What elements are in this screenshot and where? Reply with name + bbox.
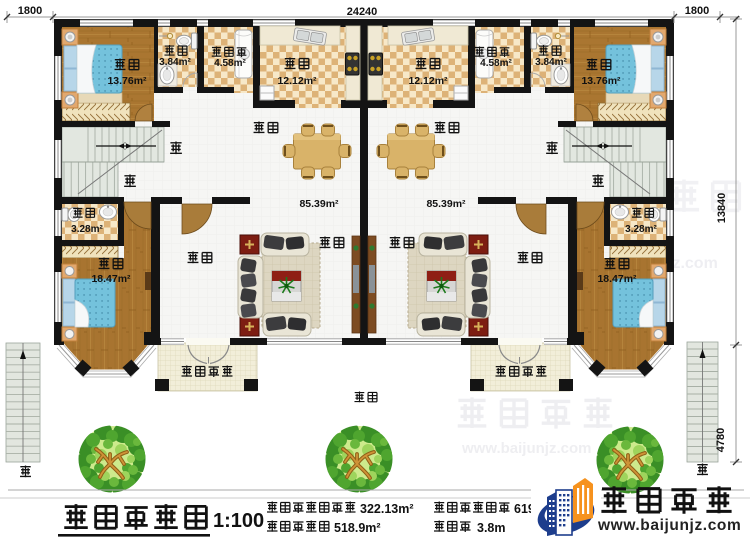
svg-text:18.47m²: 18.47m²: [91, 273, 131, 285]
svg-text:3.8m: 3.8m: [477, 521, 506, 535]
svg-text:85.39m²: 85.39m²: [426, 198, 466, 210]
svg-text:1:100: 1:100: [213, 510, 264, 532]
svg-text:1800: 1800: [18, 5, 42, 17]
svg-text:13.76m²: 13.76m²: [581, 75, 621, 87]
svg-text:518.9m²: 518.9m²: [334, 521, 381, 535]
svg-text:4.58m²: 4.58m²: [480, 58, 512, 69]
svg-text:jz.com: jz.com: [667, 255, 718, 272]
svg-text:85.39m²: 85.39m²: [299, 198, 339, 210]
svg-text:3.84m²: 3.84m²: [159, 57, 191, 68]
svg-text:1800: 1800: [685, 5, 709, 17]
svg-text:3.84m²: 3.84m²: [535, 57, 567, 68]
svg-text:13840: 13840: [716, 193, 728, 224]
svg-text:13.76m²: 13.76m²: [107, 75, 147, 87]
svg-text:www.baijunjz.com: www.baijunjz.com: [461, 440, 591, 457]
svg-text:4780: 4780: [715, 428, 727, 452]
svg-text:322.13m²: 322.13m²: [360, 502, 414, 516]
svg-text:3.28m²: 3.28m²: [625, 224, 657, 235]
svg-text:18.47m²: 18.47m²: [597, 273, 637, 285]
svg-text:3.28m²: 3.28m²: [71, 224, 103, 235]
svg-text:www.baijunjz.com: www.baijunjz.com: [597, 517, 741, 534]
svg-text:12.12m²: 12.12m²: [408, 75, 448, 87]
svg-text:12.12m²: 12.12m²: [277, 75, 317, 87]
svg-text:4.58m²: 4.58m²: [214, 58, 246, 69]
svg-text:24240: 24240: [347, 6, 378, 18]
